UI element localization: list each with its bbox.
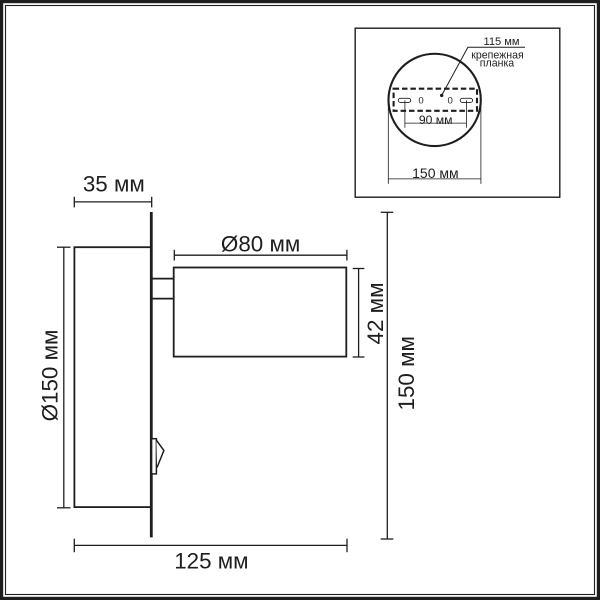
- svg-text:125 мм: 125 мм: [174, 548, 248, 573]
- svg-text:Ø80 мм: Ø80 мм: [221, 231, 300, 256]
- svg-text:Ø150 мм: Ø150 мм: [38, 330, 63, 422]
- svg-text:35 мм: 35 мм: [83, 172, 145, 197]
- svg-text:планка: планка: [480, 57, 515, 69]
- svg-text:90 мм: 90 мм: [419, 113, 453, 127]
- svg-text:150 мм: 150 мм: [394, 336, 419, 410]
- svg-text:0: 0: [448, 96, 453, 107]
- svg-text:0: 0: [418, 96, 423, 107]
- svg-text:150 мм: 150 мм: [412, 165, 459, 181]
- svg-text:115 мм: 115 мм: [483, 36, 519, 48]
- svg-text:42 мм: 42 мм: [363, 283, 388, 345]
